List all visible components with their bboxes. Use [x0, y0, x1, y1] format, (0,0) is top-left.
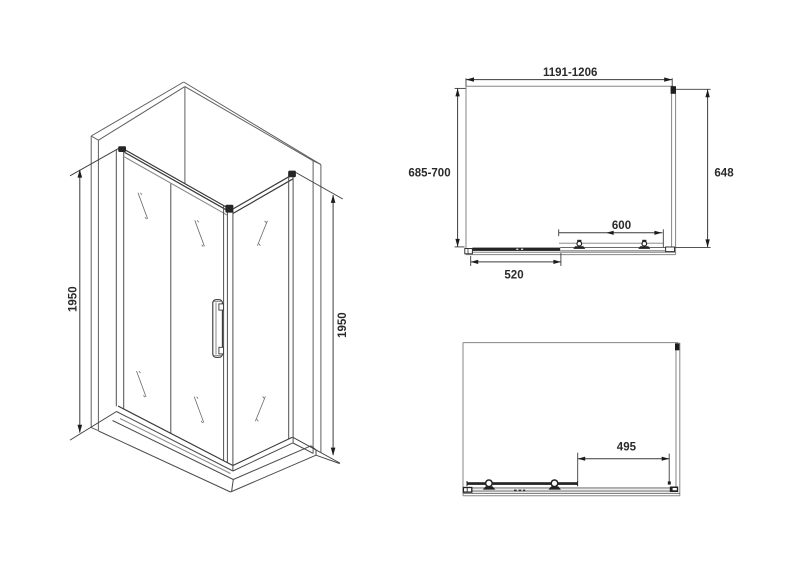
svg-text:1950: 1950: [68, 286, 80, 312]
svg-text:1191-1206: 1191-1206: [543, 67, 597, 79]
svg-text:685-700: 685-700: [408, 167, 450, 179]
svg-text:1950: 1950: [337, 312, 349, 338]
svg-text:648: 648: [714, 168, 734, 180]
svg-text:495: 495: [617, 441, 637, 453]
svg-text:600: 600: [612, 220, 631, 232]
svg-text:520: 520: [504, 270, 523, 282]
